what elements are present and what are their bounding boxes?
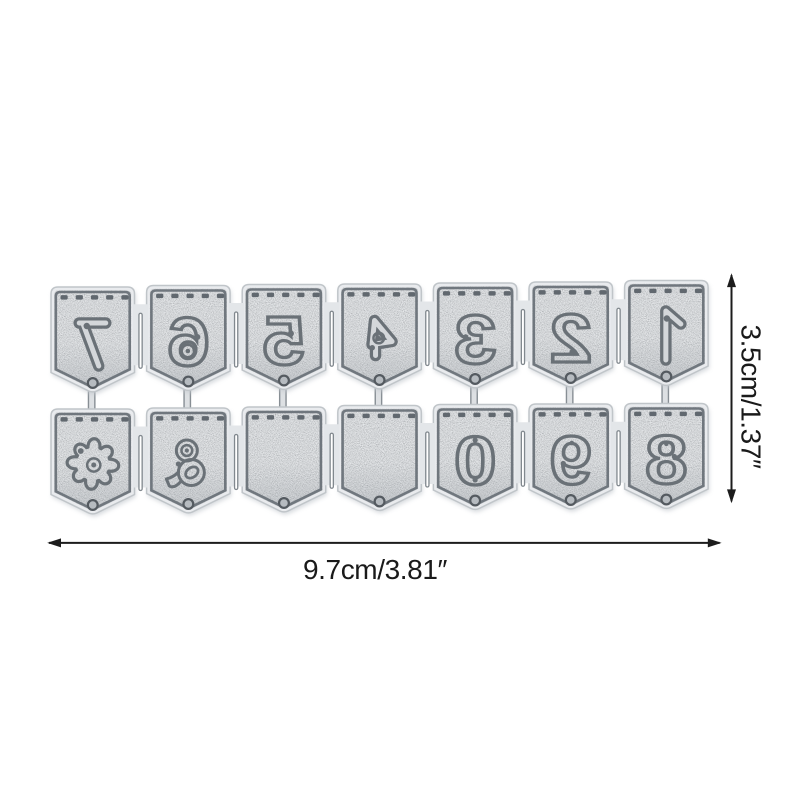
- svg-text:6: 6: [167, 304, 209, 381]
- svg-text:0: 0: [454, 423, 496, 500]
- svg-text:3.5cm/1.37″: 3.5cm/1.37″: [736, 324, 767, 469]
- svg-text:5: 5: [263, 303, 305, 380]
- svg-text:3: 3: [454, 301, 496, 378]
- svg-text:9.7cm/3.81″: 9.7cm/3.81″: [303, 554, 448, 585]
- svg-text:2: 2: [550, 300, 592, 377]
- svg-text:8: 8: [645, 422, 687, 499]
- svg-text:9: 9: [550, 422, 592, 499]
